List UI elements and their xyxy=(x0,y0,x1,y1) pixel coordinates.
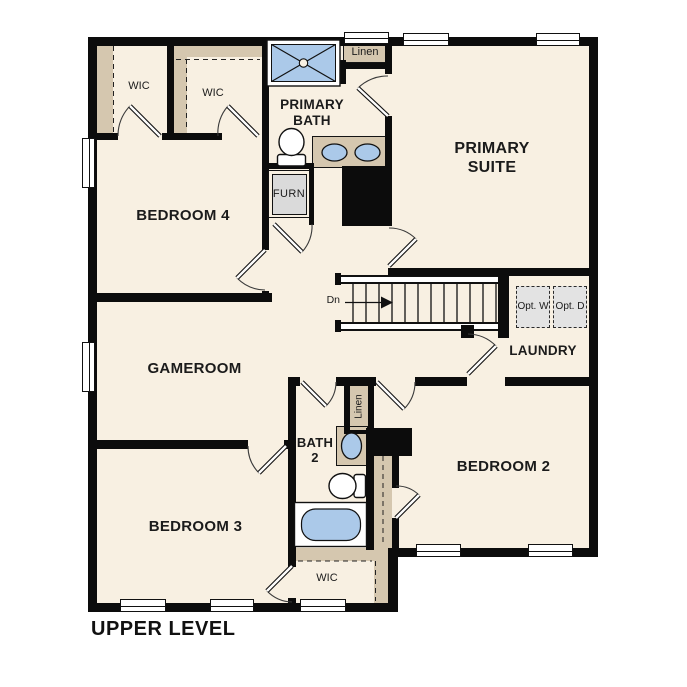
floor-plan-canvas: FURN Opt. W Opt. D xyxy=(0,0,687,687)
wic-mid-shelf-left xyxy=(174,42,187,133)
room-label-bedroom2: BEDROOM 2 xyxy=(421,458,586,476)
wall xyxy=(337,60,346,84)
window-pane xyxy=(121,606,165,607)
window-pane xyxy=(417,551,460,552)
stair-stringer xyxy=(338,275,503,284)
window xyxy=(82,342,95,392)
room-label-wic-lower: WIC xyxy=(302,572,352,584)
window-pane xyxy=(345,38,388,39)
wall xyxy=(498,268,509,338)
room-label-bath2: BATH 2 xyxy=(293,435,337,466)
room-label-wic-mid: WIC xyxy=(188,87,238,99)
wall xyxy=(589,37,598,557)
wall xyxy=(341,63,389,69)
closet-label-linen-hall: Linen xyxy=(354,387,365,427)
wall xyxy=(366,428,374,550)
optional-dryer-box: Opt. D xyxy=(553,286,587,328)
bedroom2-closet-shelf xyxy=(374,454,392,548)
window xyxy=(210,599,254,612)
window xyxy=(403,33,449,46)
chase xyxy=(342,166,392,226)
window xyxy=(416,544,461,557)
wic-left-shelf xyxy=(97,42,113,133)
furnace-label: FURN xyxy=(272,174,307,215)
window xyxy=(344,32,389,44)
wall xyxy=(505,377,598,386)
wall xyxy=(88,37,598,46)
wall xyxy=(288,598,296,612)
window-pane xyxy=(301,606,345,607)
window xyxy=(120,599,166,612)
closet-label-linen-top: Linen xyxy=(343,46,387,58)
wall xyxy=(88,293,272,302)
stair-stringer xyxy=(338,322,503,331)
window xyxy=(528,544,573,557)
primary-bath-vanity xyxy=(312,136,388,168)
wall xyxy=(344,386,350,434)
wall xyxy=(167,42,174,140)
wall xyxy=(392,518,399,550)
wall xyxy=(262,163,314,169)
window-pane xyxy=(529,551,572,552)
stair-stringer-cap xyxy=(335,320,341,332)
wall xyxy=(162,133,222,140)
room-label-laundry: LAUNDRY xyxy=(493,343,593,359)
room-label-primary-bath: PRIMARY BATH xyxy=(264,97,360,129)
room-label-bedroom4: BEDROOM 4 xyxy=(103,207,263,225)
furnace-cabinet: FURN xyxy=(268,170,310,218)
window-pane xyxy=(404,40,448,41)
stairs-direction-label: Dn xyxy=(312,295,340,307)
room-label-primary-suite: PRIMARY SUITE xyxy=(432,140,552,178)
wall xyxy=(385,116,392,168)
stair-stringer-cap xyxy=(335,273,341,285)
chase xyxy=(368,428,412,456)
window-pane xyxy=(89,343,90,391)
wall xyxy=(368,386,374,432)
window xyxy=(300,599,346,612)
window-pane xyxy=(89,139,90,187)
room-label-wic-left: WIC xyxy=(114,80,164,92)
wall xyxy=(388,268,598,276)
wall xyxy=(288,377,296,567)
wall xyxy=(336,377,376,386)
wall xyxy=(415,377,467,386)
room-label-gameroom: GAMEROOM xyxy=(112,360,277,378)
wall xyxy=(88,440,248,449)
wall xyxy=(392,454,399,488)
wall xyxy=(461,325,474,338)
wall xyxy=(97,133,118,140)
plan-title: UPPER LEVEL xyxy=(91,618,235,641)
wic-lower-shelf-right xyxy=(374,548,388,603)
optional-washer-box: Opt. W xyxy=(516,286,550,328)
window xyxy=(82,138,95,188)
exterior-area xyxy=(398,557,598,612)
room-label-bedroom3: BEDROOM 3 xyxy=(113,518,278,536)
window xyxy=(536,33,580,46)
window-pane xyxy=(537,40,579,41)
window-pane xyxy=(211,606,253,607)
wall xyxy=(88,37,97,612)
wall xyxy=(388,548,398,612)
